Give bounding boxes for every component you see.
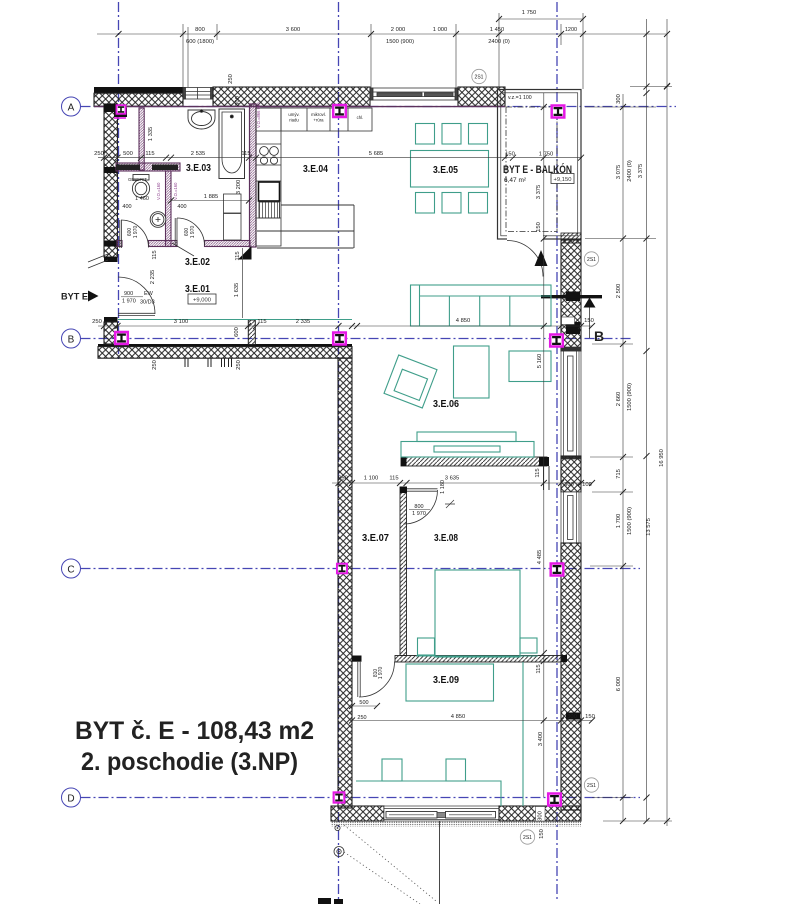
svg-text:1500 (900): 1500 (900)	[386, 39, 414, 45]
svg-text:4 850: 4 850	[451, 714, 466, 720]
svg-text:250: 250	[236, 360, 242, 370]
svg-text:1 450: 1 450	[490, 27, 505, 33]
svg-text:250: 250	[92, 319, 102, 325]
svg-text:+9,150: +9,150	[554, 177, 572, 183]
svg-text:EW: EW	[144, 291, 154, 297]
svg-text:300: 300	[616, 94, 622, 104]
svg-text:2S1: 2S1	[587, 783, 596, 789]
svg-text:2 660: 2 660	[616, 392, 622, 407]
svg-text:2. poschodie (3.NP): 2. poschodie (3.NP)	[81, 748, 298, 776]
svg-text:B: B	[68, 335, 75, 346]
svg-text:150: 150	[536, 222, 542, 232]
svg-text:600 (1800): 600 (1800)	[186, 39, 214, 45]
svg-text:B: B	[594, 328, 604, 344]
svg-text:2 335: 2 335	[296, 319, 311, 325]
svg-text:3 375: 3 375	[638, 164, 644, 179]
svg-text:3.E.07: 3.E.07	[362, 533, 389, 544]
svg-text:2 000: 2 000	[391, 27, 406, 33]
svg-text:3 375: 3 375	[536, 185, 542, 200]
svg-text:3 400: 3 400	[538, 732, 544, 747]
svg-text:300: 300	[235, 96, 241, 106]
svg-text:1 335: 1 335	[148, 127, 154, 142]
svg-text:115: 115	[235, 251, 241, 260]
svg-text:2400 (0): 2400 (0)	[627, 160, 633, 182]
svg-text:4 850: 4 850	[456, 318, 471, 324]
svg-text:500: 500	[123, 151, 133, 157]
svg-text:900: 900	[124, 291, 133, 297]
svg-text:umýv.: umýv.	[288, 112, 299, 117]
svg-text:2S1: 2S1	[523, 835, 532, 841]
svg-text:300: 300	[538, 811, 544, 821]
svg-text:+9,000: +9,000	[193, 298, 211, 304]
svg-text:1500 (900): 1500 (900)	[627, 507, 633, 535]
svg-text:2 535: 2 535	[191, 151, 206, 157]
svg-text:3.E.03: 3.E.03	[186, 163, 211, 174]
svg-text:13 575: 13 575	[646, 518, 652, 536]
svg-text:115: 115	[257, 319, 266, 325]
svg-text:100: 100	[582, 482, 592, 488]
svg-text:2S1: 2S1	[587, 257, 596, 263]
svg-text:300: 300	[567, 714, 577, 720]
svg-text:600: 600	[234, 327, 240, 337]
svg-text:3.E.06: 3.E.06	[433, 399, 459, 410]
svg-text:1 970: 1 970	[412, 511, 426, 517]
svg-text:5 685: 5 685	[369, 151, 384, 157]
svg-text:3.E.09: 3.E.09	[433, 675, 459, 686]
svg-text:chl.: chl.	[357, 115, 364, 120]
svg-text:250: 250	[152, 360, 158, 370]
svg-text:1200: 1200	[565, 27, 577, 33]
svg-text:1500 (900): 1500 (900)	[627, 383, 633, 411]
svg-text:115: 115	[536, 664, 542, 673]
svg-text:C: C	[67, 565, 74, 576]
svg-text:riadu: riadu	[289, 118, 299, 123]
svg-text:500: 500	[359, 700, 368, 706]
svg-text:GEBERIT: GEBERIT	[128, 177, 147, 182]
svg-text:5 160: 5 160	[537, 354, 543, 369]
svg-text:3 635: 3 635	[445, 476, 460, 482]
svg-text:2400 (0): 2400 (0)	[488, 39, 510, 45]
svg-text:30/D3: 30/D3	[140, 300, 155, 306]
svg-text:300: 300	[564, 482, 574, 488]
svg-text:1 970: 1 970	[190, 226, 196, 239]
svg-text:1 700: 1 700	[616, 514, 622, 529]
svg-text:3 075: 3 075	[616, 165, 622, 180]
svg-text:mikrovl.: mikrovl.	[311, 112, 326, 117]
svg-text:4 485: 4 485	[537, 550, 543, 565]
svg-text:6,47 m²: 6,47 m²	[504, 177, 527, 184]
svg-text:150: 150	[505, 152, 515, 158]
svg-text:3 100: 3 100	[174, 319, 189, 325]
svg-text:115: 115	[152, 250, 158, 259]
svg-text:3 600: 3 600	[286, 27, 301, 33]
svg-text:115: 115	[535, 468, 541, 477]
svg-text:250: 250	[94, 151, 104, 157]
svg-text:1 100: 1 100	[364, 476, 379, 482]
svg-text:3.E.08: 3.E.08	[434, 533, 458, 544]
svg-text:400: 400	[122, 204, 131, 210]
svg-text:V.O.=160: V.O.=160	[156, 182, 161, 200]
svg-text:6 000: 6 000	[616, 677, 622, 692]
svg-text:1 180: 1 180	[440, 480, 446, 494]
svg-text:v.z.=1 100: v.z.=1 100	[508, 95, 532, 101]
svg-text:2 235: 2 235	[150, 270, 156, 285]
svg-text:A: A	[68, 103, 75, 114]
svg-text:800: 800	[414, 504, 423, 510]
svg-text:1 635: 1 635	[234, 283, 240, 298]
svg-text:150: 150	[585, 714, 595, 720]
svg-text:3.E.05: 3.E.05	[433, 165, 458, 176]
svg-text:3.E.04: 3.E.04	[303, 164, 328, 175]
svg-text:115: 115	[145, 151, 154, 157]
svg-text:1 750: 1 750	[539, 152, 554, 158]
svg-text:800: 800	[195, 27, 205, 33]
svg-text:1 970: 1 970	[378, 667, 384, 680]
svg-text:1 000: 1 000	[433, 27, 448, 33]
svg-text:1 750: 1 750	[522, 10, 537, 16]
svg-text:3 200: 3 200	[236, 180, 242, 195]
svg-text:+rúra: +rúra	[313, 118, 324, 123]
svg-text:D: D	[67, 794, 74, 805]
svg-text:BYT E: BYT E	[61, 292, 88, 302]
svg-text:1 460: 1 460	[135, 196, 149, 202]
svg-text:150: 150	[539, 829, 545, 839]
svg-text:150: 150	[584, 318, 594, 324]
svg-text:250: 250	[357, 715, 366, 721]
svg-text:115: 115	[389, 476, 398, 482]
svg-text:1 970: 1 970	[133, 226, 139, 239]
svg-text:2S1: 2S1	[475, 75, 484, 81]
svg-text:3.E.01: 3.E.01	[185, 284, 210, 295]
svg-text:115: 115	[241, 151, 250, 157]
svg-text:1 885: 1 885	[204, 194, 219, 200]
svg-text:250: 250	[228, 74, 234, 84]
svg-text:3.E.02: 3.E.02	[185, 257, 210, 268]
svg-text:1 970: 1 970	[122, 299, 136, 305]
svg-text:V.O.=160: V.O.=160	[173, 182, 178, 200]
svg-text:715: 715	[616, 469, 622, 479]
svg-text:BYT č. E - 108,43 m2: BYT č. E - 108,43 m2	[75, 717, 314, 745]
svg-text:400: 400	[177, 204, 186, 210]
svg-text:2 500: 2 500	[616, 284, 622, 299]
svg-text:V.O.=866 900: V.O.=866 900	[256, 102, 261, 128]
svg-text:250: 250	[338, 476, 348, 482]
svg-text:16 950: 16 950	[659, 449, 665, 467]
